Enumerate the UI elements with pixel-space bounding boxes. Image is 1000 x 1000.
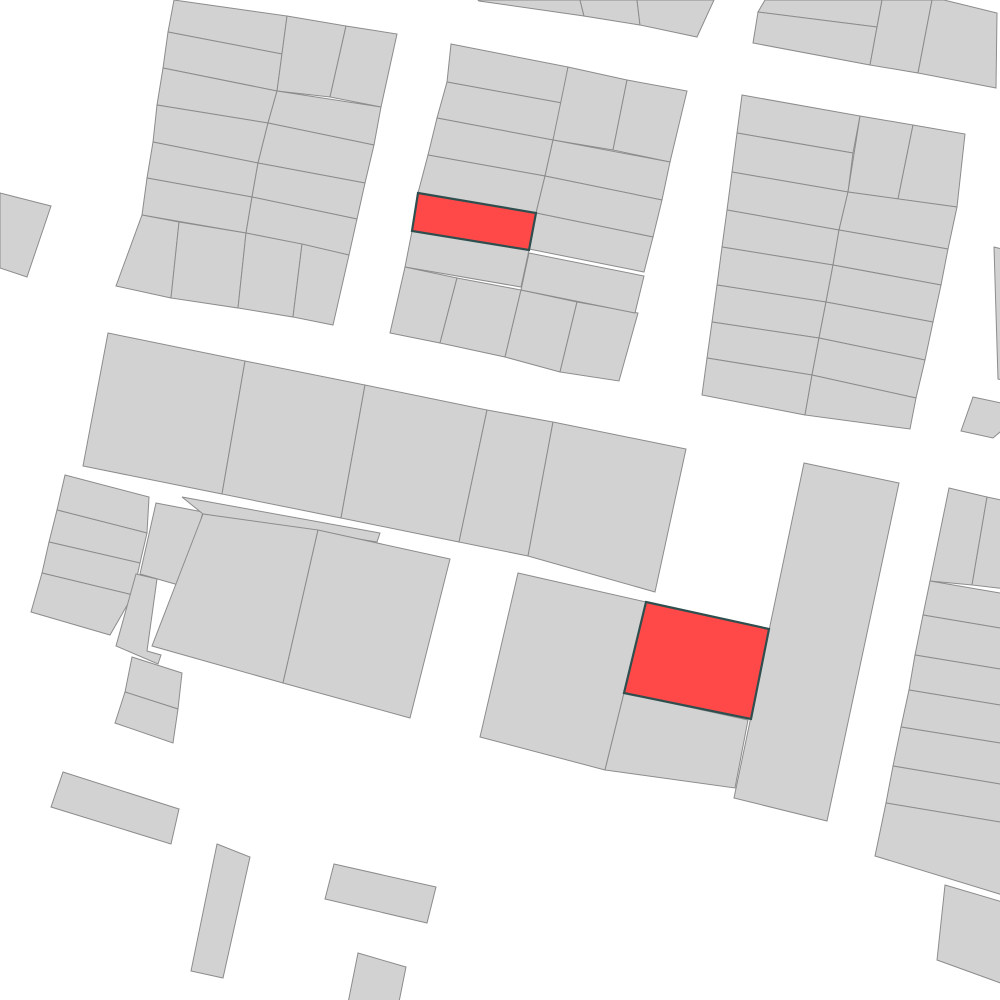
parcel[interactable] [51,772,179,844]
parcel[interactable] [937,885,1000,985]
parcel[interactable] [171,222,246,308]
parcel[interactable] [116,215,179,298]
parcel[interactable] [83,333,245,494]
parcel[interactable] [637,0,714,37]
parcel[interactable] [222,361,365,518]
parcel[interactable] [348,953,406,1000]
parcel[interactable] [918,0,997,88]
parcel[interactable] [961,397,1000,438]
parcel[interactable] [238,233,302,317]
parcel-map-canvas [0,0,1000,1000]
parcel[interactable] [0,193,51,277]
parcel[interactable] [528,422,686,592]
parcel[interactable] [191,844,250,978]
parcel[interactable] [580,0,640,25]
parcel[interactable] [478,0,584,16]
parcel[interactable] [994,247,1000,381]
parcel[interactable] [325,864,436,923]
parcel[interactable] [293,244,349,325]
parcel-map [0,0,1000,1000]
parcel[interactable] [613,80,687,162]
